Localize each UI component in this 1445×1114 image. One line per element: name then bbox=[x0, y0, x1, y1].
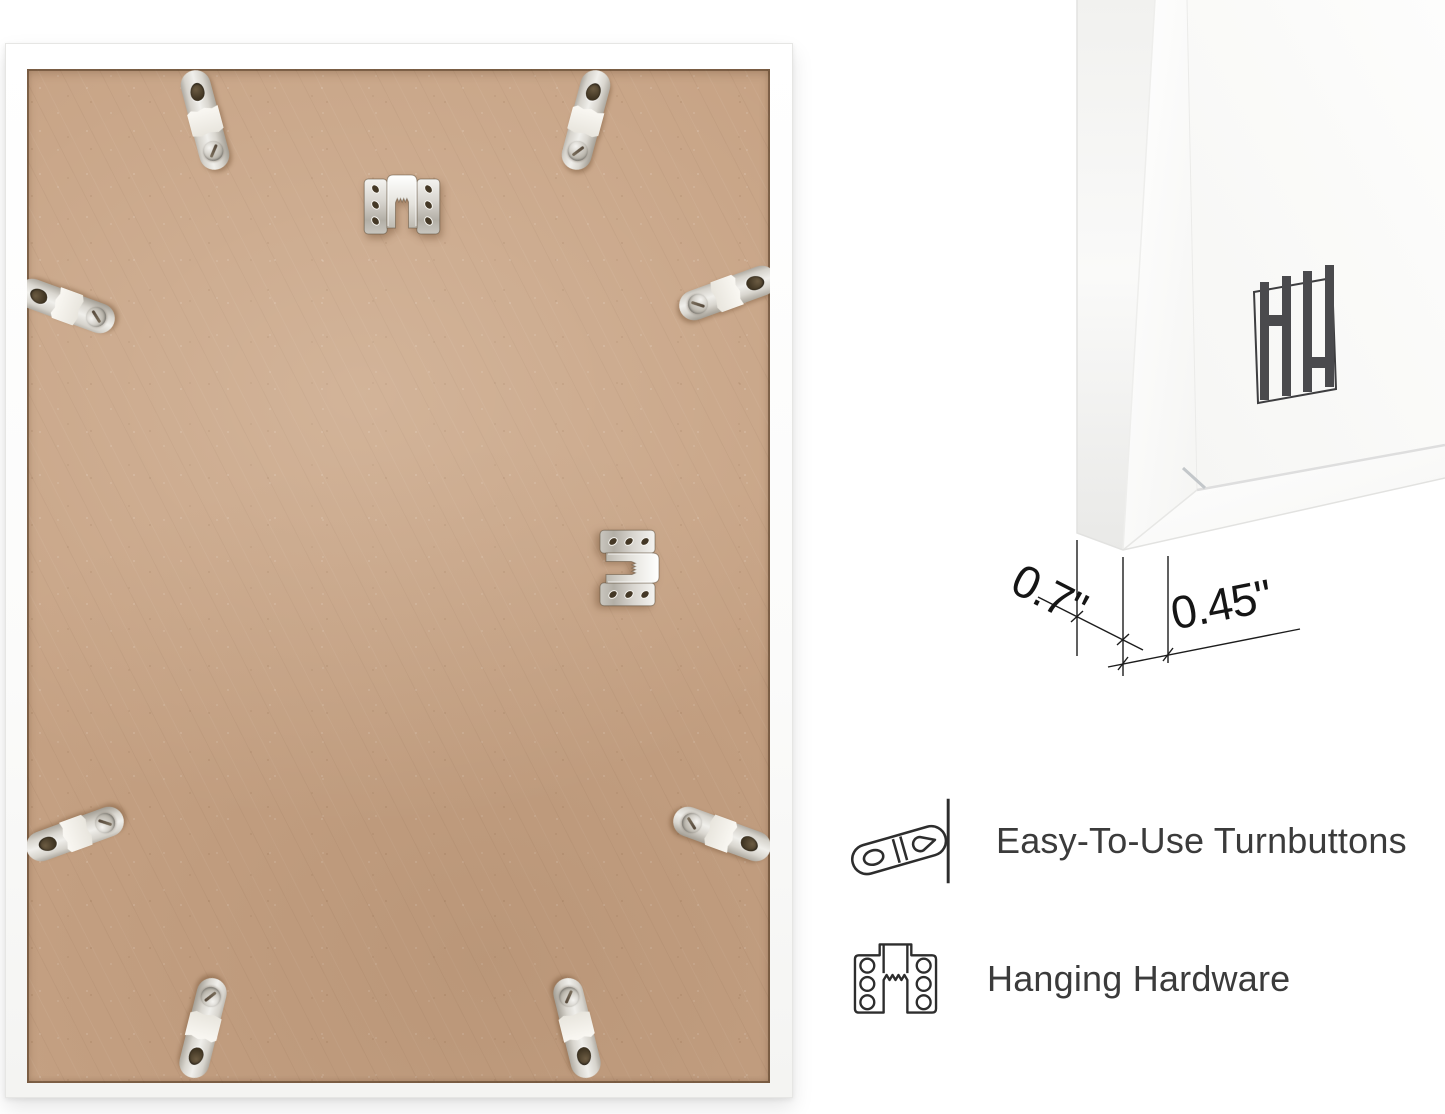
dimension-label-depth: 0.7" bbox=[1003, 553, 1095, 634]
turnbutton bbox=[558, 69, 613, 173]
turnbutton bbox=[27, 274, 119, 337]
turnbutton-screw bbox=[679, 810, 705, 836]
turnbutton-icon bbox=[848, 793, 958, 889]
turnbutton-screw bbox=[201, 139, 225, 163]
turnbutton-paint-band bbox=[702, 814, 738, 853]
turnbutton-paint-band bbox=[49, 287, 85, 326]
feature-row-turnbuttons: Easy-To-Use Turnbuttons bbox=[848, 792, 1407, 890]
turnbutton bbox=[669, 802, 770, 865]
turnbutton-paint-band bbox=[567, 104, 605, 138]
turnbutton-screw bbox=[557, 985, 581, 1009]
frame-back-photo bbox=[5, 43, 793, 1098]
corner-detail-diagram: 0.7" 0.45" bbox=[1000, 0, 1445, 700]
sawtooth-hanger bbox=[598, 529, 662, 607]
product-detail-page: { "corner_detail": { "depth_label": "0.7… bbox=[0, 0, 1445, 1114]
turnbutton-paint-band bbox=[58, 814, 94, 853]
turnbutton-paint-band bbox=[708, 274, 744, 313]
turnbutton bbox=[176, 975, 230, 1081]
turnbutton-screw bbox=[565, 139, 589, 163]
turnbutton-screw bbox=[83, 304, 109, 330]
feature-row-hanging-hardware: Hanging Hardware bbox=[852, 936, 1290, 1022]
hanging-hardware-icon bbox=[852, 939, 939, 1019]
turnbutton-screw bbox=[199, 985, 223, 1009]
sawtooth-hanger bbox=[363, 172, 441, 236]
canvas-area bbox=[1187, 0, 1445, 490]
turnbutton bbox=[550, 975, 604, 1081]
turnbutton bbox=[27, 802, 128, 865]
backing-board bbox=[27, 69, 770, 1083]
turnbutton-screw bbox=[92, 810, 118, 836]
feature-label: Hanging Hardware bbox=[987, 958, 1290, 1000]
turnbutton-paint-band bbox=[186, 104, 224, 138]
turnbutton bbox=[675, 261, 770, 324]
turnbutton-screw bbox=[685, 291, 711, 317]
turnbutton-paint-band bbox=[185, 1010, 223, 1044]
turnbutton bbox=[177, 69, 232, 173]
feature-label: Easy-To-Use Turnbuttons bbox=[996, 820, 1407, 862]
turnbutton-paint-band bbox=[558, 1010, 596, 1044]
dimension-label-face-width: 0.45" bbox=[1166, 569, 1275, 639]
